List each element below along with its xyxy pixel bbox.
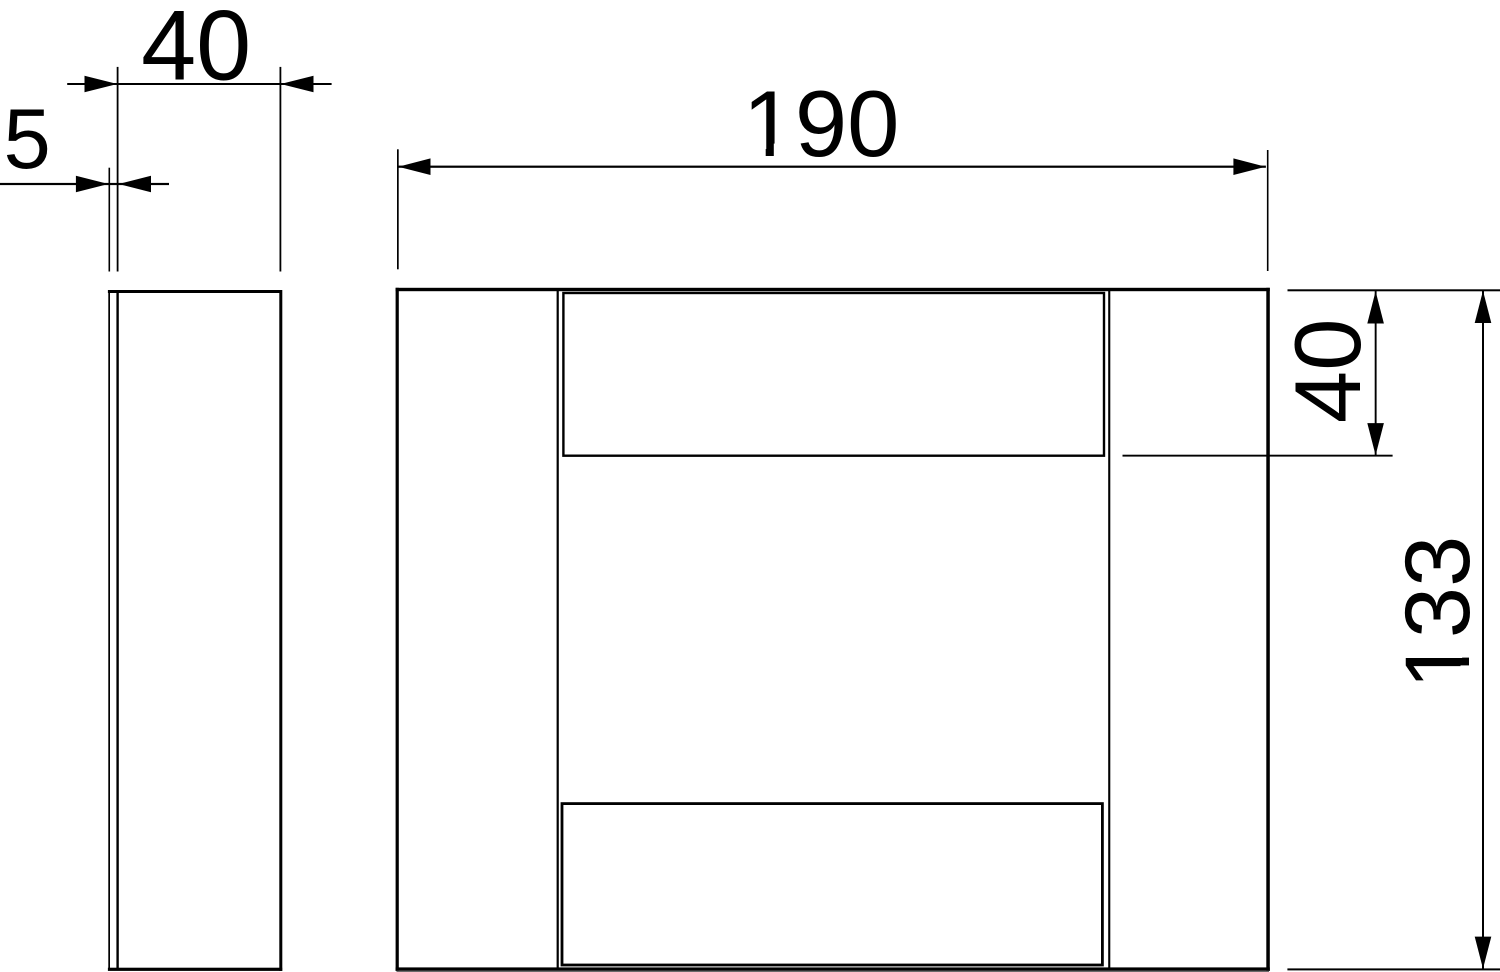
svg-text:40: 40 xyxy=(141,0,251,100)
svg-text:190: 190 xyxy=(743,71,900,176)
svg-text:40: 40 xyxy=(1275,319,1380,424)
svg-text:5: 5 xyxy=(4,92,51,187)
svg-text:133: 133 xyxy=(1387,536,1489,690)
